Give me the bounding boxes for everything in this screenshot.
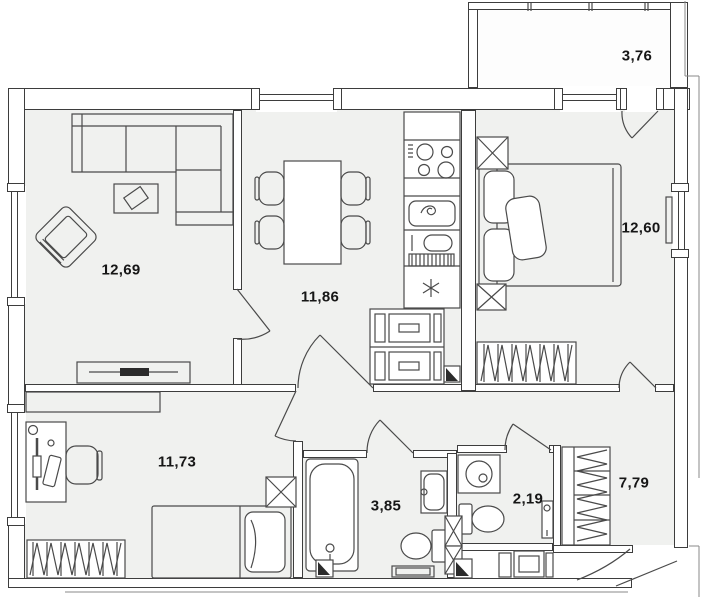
dining-table <box>284 161 341 264</box>
door-room2 <box>275 391 296 441</box>
toilet-bathroom <box>401 530 447 562</box>
door-entrance <box>577 549 677 586</box>
room-area-label-balcony: 3,76 <box>622 48 652 65</box>
armchair <box>33 204 98 269</box>
wardrobe-bedroom <box>477 342 576 384</box>
room-area-label-living: 12,69 <box>101 262 140 279</box>
room-area-label-dining: 11,86 <box>301 289 339 306</box>
kitchen-counter <box>404 112 460 308</box>
bathroom-sink <box>421 471 447 513</box>
double-bed <box>479 164 621 286</box>
room-area-label-bedroom: 12,60 <box>621 220 660 237</box>
single-bed <box>152 506 291 578</box>
door-balcony <box>622 111 658 138</box>
shaft-box-wc-upper <box>445 516 462 546</box>
shaft-box-bedroom-bottom <box>477 284 506 310</box>
wardrobe-hallway <box>562 447 610 545</box>
wc-sink <box>542 501 553 538</box>
room-area-label-wc: 2,19 <box>513 491 543 508</box>
corner-sofa <box>72 114 233 225</box>
door-bathroom <box>367 420 413 453</box>
shelf-room2 <box>26 392 160 412</box>
tv-stand <box>77 362 190 383</box>
entry-cabinet <box>499 551 553 577</box>
door-living-dining <box>237 289 270 339</box>
toilet-wc <box>459 504 504 534</box>
washing-machine <box>458 455 500 493</box>
room-area-label-hallway: 7,79 <box>619 475 649 492</box>
floor-plan: 12,69 11,86 12,60 3,76 11,73 3,85 2,19 7… <box>0 0 706 600</box>
bath-mat <box>392 566 434 577</box>
door-wc <box>505 424 551 450</box>
door-bedroom <box>619 362 656 388</box>
door-dining <box>298 335 373 388</box>
shaft-box-room2 <box>266 477 296 507</box>
bathtub <box>306 459 358 571</box>
desk <box>26 422 66 502</box>
coffee-table <box>114 184 158 213</box>
kitchen-cabinet <box>370 309 444 384</box>
wardrobe-room2 <box>27 540 125 578</box>
vent-marker-kitchen <box>444 366 460 382</box>
drain-marker-bathroom <box>316 560 333 577</box>
radiator-bedroom <box>666 197 672 243</box>
drain-marker-niche <box>454 559 472 578</box>
shaft-box-bedroom-top <box>477 137 508 169</box>
balcony-glazing-ticks <box>528 3 648 11</box>
room-area-label-bathroom: 3,85 <box>371 498 401 515</box>
room-area-label-room2: 11,73 <box>158 454 196 471</box>
furniture-layer <box>0 0 706 600</box>
desk-chair <box>66 446 102 484</box>
